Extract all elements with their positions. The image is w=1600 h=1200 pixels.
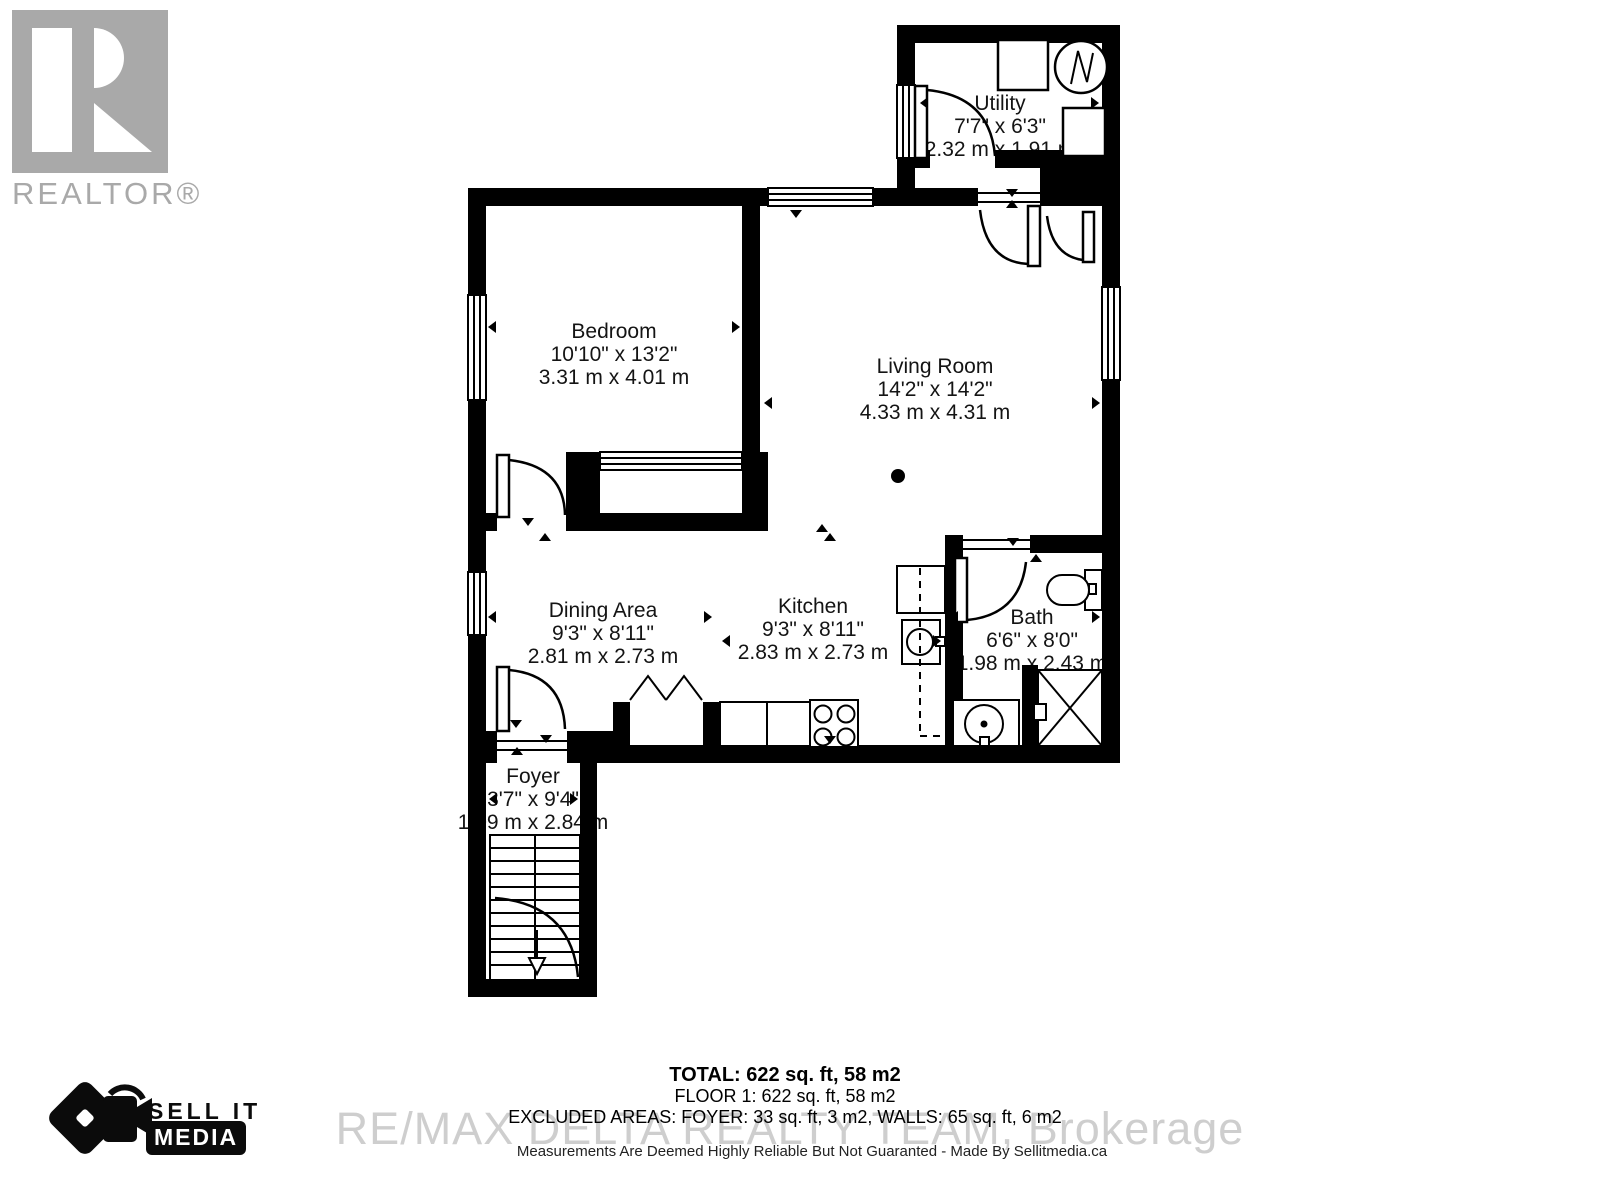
room-name: Bath (957, 606, 1108, 629)
room-label-bath: Bath 6'6" x 8'0" 1.98 m x 2.43 m (957, 606, 1108, 675)
room-dims-ft: 9'3" x 8'11" (528, 622, 679, 645)
room-dims-ft: 14'2" x 14'2" (860, 378, 1011, 401)
summary-total: TOTAL: 622 sq. ft, 58 m2 (508, 1064, 1062, 1086)
sellit-media-logo-icon (0, 1060, 340, 1170)
room-dims-m: 2.83 m x 2.73 m (738, 641, 889, 664)
stairs (490, 835, 580, 980)
floor-plan-canvas: RE/MAX DELTA REALTY TEAM, Brokerage Util… (0, 0, 1600, 1200)
summary-floor1: FLOOR 1: 622 sq. ft, 58 m2 (508, 1086, 1062, 1107)
realtor-logo: REALTOR® (0, 0, 240, 230)
dimension-arrows (488, 97, 1100, 805)
room-dims-m: 2.81 m x 2.73 m (528, 645, 679, 668)
room-dims-ft: 7'7" x 6'3" (925, 115, 1076, 138)
room-name: Kitchen (738, 595, 889, 618)
summary-excluded: EXCLUDED AREAS: FOYER: 33 sq. ft, 3 m2, … (508, 1107, 1062, 1128)
room-label-dining: Dining Area 9'3" x 8'11" 2.81 m x 2.73 m (528, 599, 679, 668)
sellit-media-logo (0, 1060, 340, 1170)
room-dims-m: 1.98 m x 2.43 m (957, 652, 1108, 675)
realtor-logo-text: REALTOR® (12, 176, 202, 212)
room-dims-m: 1.09 m x 2.84 m (458, 811, 609, 834)
room-dims-ft: 3'7" x 9'4" (458, 788, 609, 811)
room-name: Dining Area (528, 599, 679, 622)
walls (468, 25, 1120, 997)
disclaimer-text: Measurements Are Deemed Highly Reliable … (517, 1143, 1107, 1160)
room-name: Foyer (458, 765, 609, 788)
ceiling-light-dot (891, 469, 905, 483)
room-dims-ft: 9'3" x 8'11" (738, 618, 889, 641)
room-label-bedroom: Bedroom 10'10" x 13'2" 3.31 m x 4.01 m (539, 320, 690, 389)
room-label-kitchen: Kitchen 9'3" x 8'11" 2.83 m x 2.73 m (738, 595, 889, 664)
room-dims-m: 3.31 m x 4.01 m (539, 366, 690, 389)
room-dims-m: 2.32 m x 1.91 m (925, 138, 1076, 161)
room-dims-ft: 6'6" x 8'0" (957, 629, 1108, 652)
room-name: Bedroom (539, 320, 690, 343)
room-dims-ft: 10'10" x 13'2" (539, 343, 690, 366)
room-name: Utility (925, 92, 1076, 115)
room-label-living: Living Room 14'2" x 14'2" 4.33 m x 4.31 … (860, 355, 1011, 424)
room-dims-m: 4.33 m x 4.31 m (860, 401, 1011, 424)
area-summary: TOTAL: 622 sq. ft, 58 m2 FLOOR 1: 622 sq… (508, 1064, 1062, 1128)
room-label-utility: Utility 7'7" x 6'3" 2.32 m x 1.91 m (925, 92, 1076, 161)
room-name: Living Room (860, 355, 1011, 378)
room-label-foyer: Foyer 3'7" x 9'4" 1.09 m x 2.84 m (458, 765, 609, 834)
